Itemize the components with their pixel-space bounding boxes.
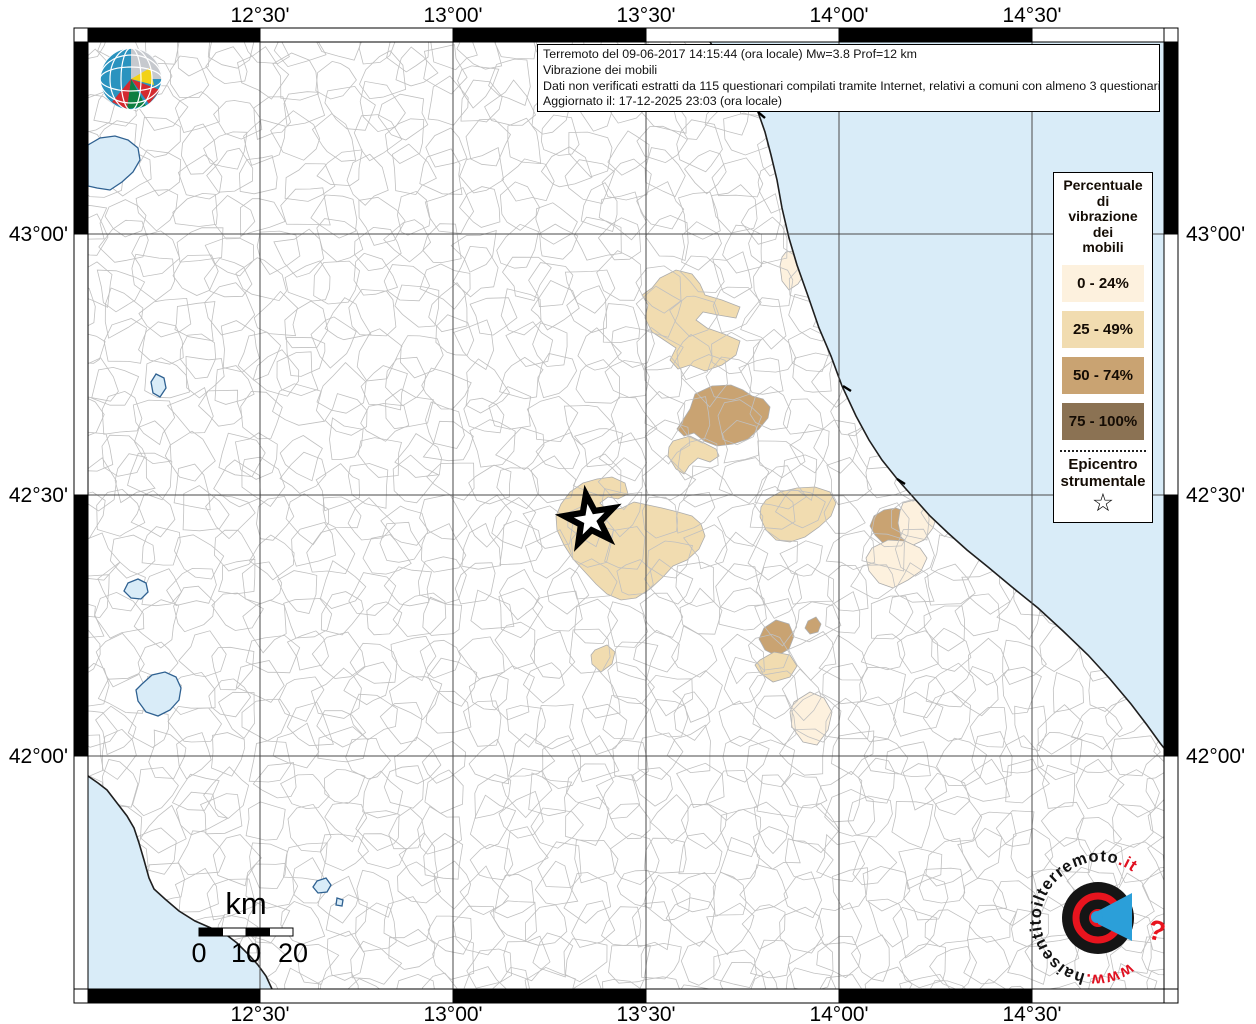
lon-label-top: 14°00'	[809, 4, 868, 27]
lat-label-right: 42°00'	[1186, 745, 1245, 768]
lat-label-left: 42°30'	[9, 484, 68, 507]
lon-label-top: 14°30'	[1002, 4, 1061, 27]
frame-corner	[74, 989, 88, 1003]
hsit-map-page: km0102012°30'12°30'13°00'13°00'13°30'13°…	[0, 0, 1256, 1024]
ingv-logo	[100, 48, 162, 110]
map-subject: Vibrazione dei mobili	[543, 63, 1154, 79]
map-layers: km01020	[57, 8, 1202, 1024]
lat-label-left: 42°00'	[9, 745, 68, 768]
lon-label-bottom: 14°00'	[809, 1003, 868, 1024]
lon-label-bottom: 13°30'	[616, 1003, 675, 1024]
frame-corner	[1164, 28, 1178, 42]
legend-epicenter-line: Epicentro	[1054, 456, 1152, 473]
lon-label-top: 13°00'	[423, 4, 482, 27]
legend-class-swatch: 75 - 100%	[1062, 403, 1144, 440]
scale-bar-tick-label: 10	[231, 938, 261, 968]
lat-label-left: 43°00'	[9, 223, 68, 246]
lon-label-top: 13°30'	[616, 4, 675, 27]
lon-label-bottom: 12°30'	[230, 1003, 289, 1024]
legend-title-line: Percentuale	[1054, 178, 1152, 194]
legend-epicenter-label: Epicentrostrumentale	[1054, 456, 1152, 490]
legend-class-swatch: 25 - 49%	[1062, 311, 1144, 348]
legend-class-swatch: 0 - 24%	[1062, 265, 1144, 302]
lat-label-right: 43°00'	[1186, 223, 1245, 246]
lake	[336, 898, 343, 906]
frame-corner	[1164, 989, 1178, 1003]
scale-bar-tick-label: 0	[191, 938, 206, 968]
legend-title-line: di	[1054, 194, 1152, 210]
legend-swatches: 0 - 24%25 - 49%50 - 74%75 - 100%	[1054, 265, 1152, 440]
legend-title-line: dei	[1054, 225, 1152, 241]
lat-label-right: 42°30'	[1186, 484, 1245, 507]
updated-timestamp: Aggiornato il: 17-12-2025 23:03 (ora loc…	[543, 94, 1154, 110]
earthquake-title: Terremoto del 09-06-2017 14:15:44 (ora l…	[543, 47, 1154, 63]
legend-title: Percentualedivibrazionedeimobili	[1054, 178, 1152, 256]
scale-bar-tick-label: 20	[278, 938, 308, 968]
lon-label-bottom: 14°30'	[1002, 1003, 1061, 1024]
frame-corner	[74, 28, 88, 42]
legend-divider	[1060, 450, 1146, 452]
lon-label-bottom: 13°00'	[423, 1003, 482, 1024]
legend-title-line: mobili	[1054, 240, 1152, 256]
legend: Percentualedivibrazionedeimobili 0 - 24%…	[1053, 172, 1153, 523]
scale-bar-unit: km	[225, 886, 266, 921]
earthquake-info-box: Terremoto del 09-06-2017 14:15:44 (ora l…	[537, 44, 1160, 112]
legend-epicenter-line: strumentale	[1054, 473, 1152, 490]
data-disclaimer: Dati non verificati estratti da 115 ques…	[543, 79, 1154, 95]
ingv-globe-icon	[100, 48, 162, 110]
legend-star-icon: ☆	[1054, 490, 1152, 516]
legend-title-line: vibrazione	[1054, 209, 1152, 225]
legend-class-swatch: 50 - 74%	[1062, 357, 1144, 394]
lon-label-top: 12°30'	[230, 4, 289, 27]
